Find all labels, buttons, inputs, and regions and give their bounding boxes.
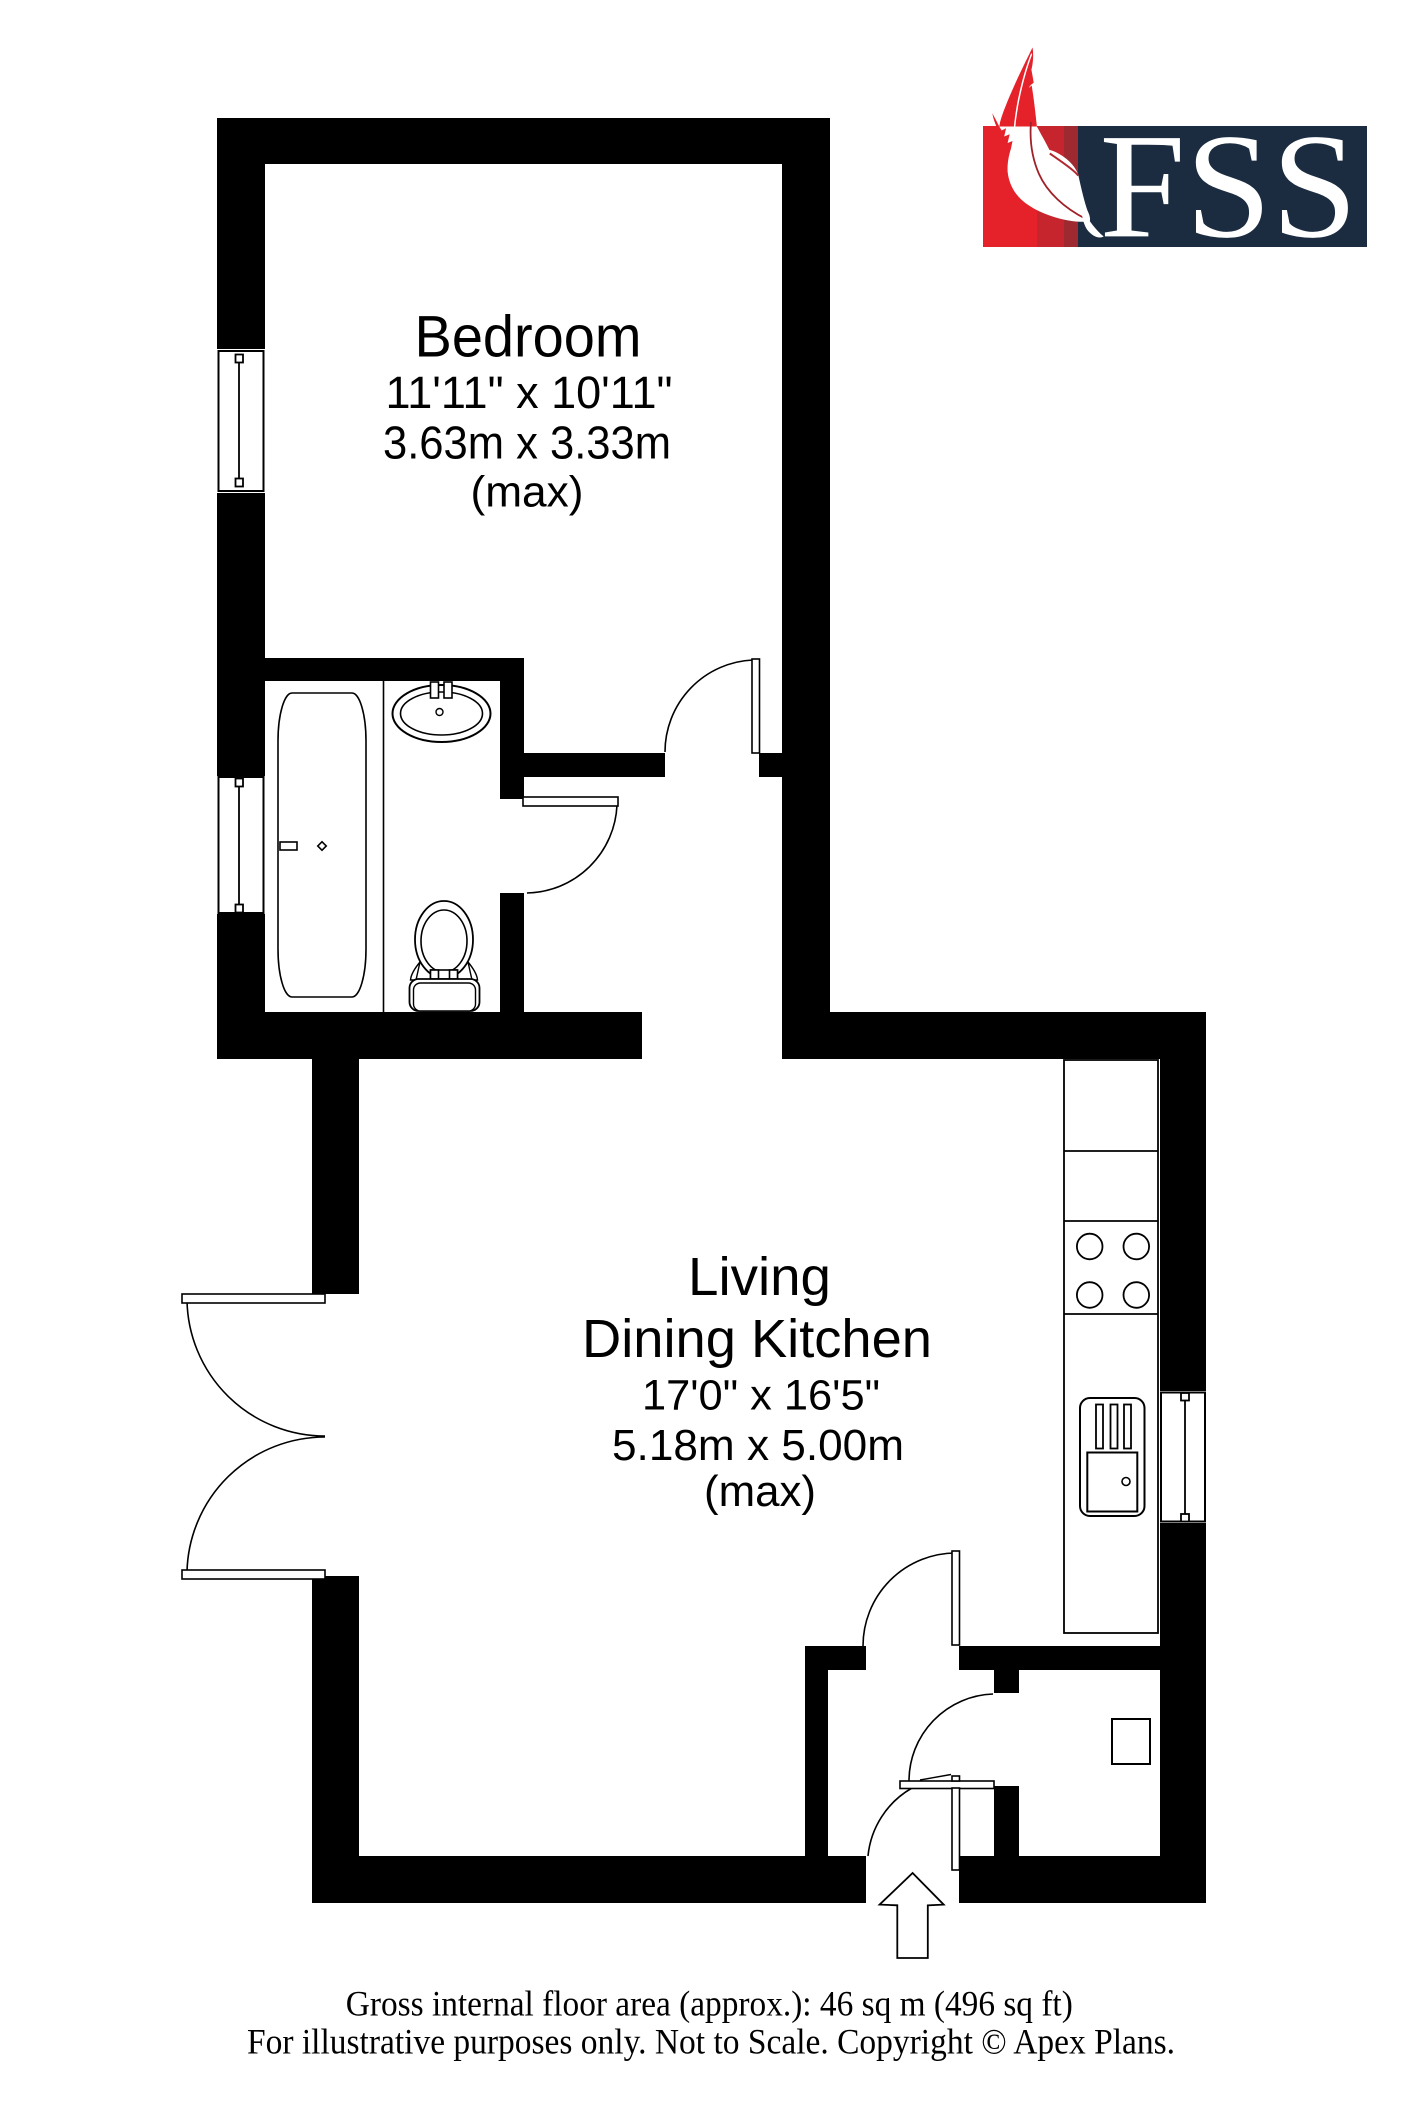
svg-text:Bedroom: Bedroom	[415, 305, 642, 370]
svg-text:5.18m x 5.00m: 5.18m x 5.00m	[612, 1421, 904, 1470]
svg-text:3.63m x 3.33m: 3.63m x 3.33m	[383, 416, 671, 468]
svg-text:Gross internal floor area (app: Gross internal floor area (approx.): 46 …	[346, 1984, 1073, 2024]
svg-text:11'11" x 10'11": 11'11" x 10'11"	[386, 367, 673, 418]
svg-text:Dining Kitchen: Dining Kitchen	[582, 1310, 932, 1369]
svg-text:For illustrative purposes only: For illustrative purposes only. Not to S…	[247, 2022, 1175, 2062]
svg-text:(max): (max)	[704, 1467, 816, 1516]
svg-text:(max): (max)	[471, 468, 584, 517]
svg-text:Living: Living	[688, 1247, 831, 1307]
svg-text:FSS: FSS	[1100, 103, 1358, 269]
svg-text:17'0" x 16'5": 17'0" x 16'5"	[642, 1371, 880, 1419]
